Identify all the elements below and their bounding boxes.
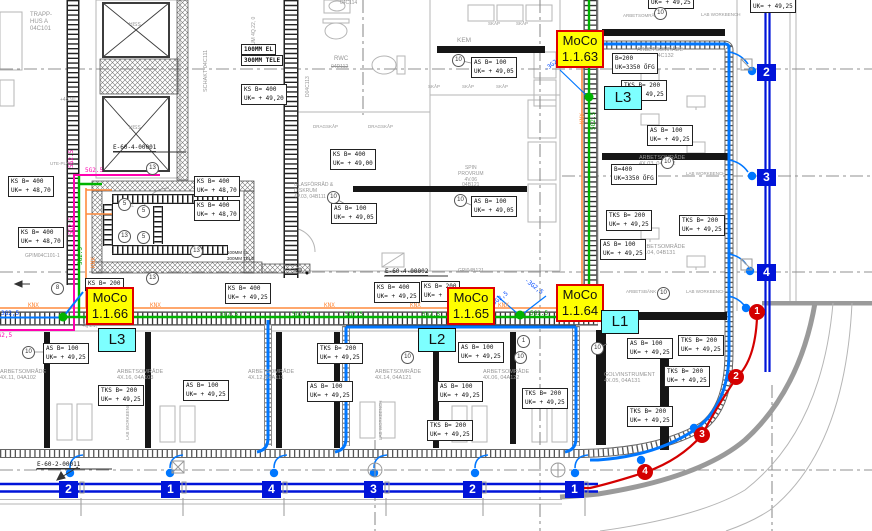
- furniture-label-lab: LAB WORKBENCH: [701, 12, 741, 17]
- measure-box: KS B= 400UK= + 49,25: [374, 282, 420, 303]
- ref-circle-5: 5: [137, 205, 150, 218]
- ref-circle-8: 8: [51, 282, 64, 295]
- cable-label-3g25-b: 3G2,5: [1, 310, 19, 317]
- cable-label-5g25: 5G2.5: [220, 311, 238, 318]
- duct-note-300mm: 300MM TELE: [227, 256, 254, 261]
- measure-box: TKS B= 200UK= + 49,25: [627, 406, 673, 427]
- cable-label-5g25-mv: 5G2.5: [68, 217, 75, 235]
- furniture-label-skap: SKÅP: [462, 84, 474, 89]
- room-label-trapphus: TRAPP-HUS A04C101: [30, 12, 52, 33]
- area-label-4x11: ARBETSOMRÅDE4X.11, 04A102: [0, 369, 46, 382]
- measure-box: AS B= 100UK= + 49,05: [471, 57, 517, 78]
- ref-circle-10: 10: [454, 194, 467, 207]
- cable-label-5g25-v: 5G2.5: [77, 247, 84, 265]
- ref-circle-10: 10: [657, 287, 670, 300]
- measure-box: AS B= 100UK= + 49,25: [627, 338, 673, 359]
- load-label-l2: L2: [418, 328, 456, 352]
- eq-label-e60-4-00001: E-60-4-00001: [113, 144, 156, 152]
- eq-label-gpi: GPI04B121: [458, 269, 484, 275]
- cable-label-5g25-v: 5G2.5: [590, 112, 597, 130]
- room-label-rwc: RWC: [334, 56, 348, 63]
- grid-marker-blue-4: 4: [757, 264, 776, 281]
- measure-box: AS B= 100UK= + 49,05: [331, 203, 377, 224]
- duct-box-100mm-el: 100MM EL: [241, 44, 276, 55]
- ref-circle-10: 10: [452, 54, 465, 67]
- measure-box: TKS B= 200UK= + 49,25: [427, 420, 473, 441]
- marker-red-1: 1: [749, 304, 765, 320]
- area-label-4x12: ARBETSOMRÅDE4X.12, 04A111: [248, 369, 294, 382]
- grid-marker-blue-2: 2: [463, 481, 482, 498]
- measure-box: AS B= 100UK= + 49,25: [648, 0, 694, 9]
- cable-label-5g25: 5G2.5: [422, 311, 440, 318]
- measure-box: AS B= 100UK= + 49,25: [437, 381, 483, 402]
- ref-circle-13: 13: [118, 230, 131, 243]
- room-label-spin: SPINPROVRUM4V.0604B121: [458, 166, 484, 189]
- grid-marker-blue-1: 1: [565, 481, 584, 498]
- ref-circle-13: 13: [190, 245, 203, 258]
- cable-label-5g25: 5G2.5: [530, 310, 548, 317]
- ref-circle-10: 10: [654, 7, 667, 20]
- ref-circle-10: 10: [22, 346, 35, 359]
- measure-box: KS B= 400UK= + 48,70: [194, 200, 240, 221]
- cable-label-5g25: 5G2.5: [292, 311, 310, 318]
- area-label-4x06: ARBETSOMRÅDE4X.06, 04A122: [483, 369, 529, 382]
- load-label-l3-left: L3: [98, 328, 136, 352]
- duct-note-100mm: 100MM EL: [227, 250, 249, 255]
- ref-circle-13: 13: [146, 162, 159, 175]
- ref-circle-1: 1: [517, 335, 530, 348]
- ref-circle-5: 5: [137, 231, 150, 244]
- area-label-4x04: ARBETSOMRÅDE4X.04, 04B131: [639, 244, 685, 257]
- measure-box: TKS B= 200UK= + 49,25: [606, 210, 652, 231]
- moco-label-1-1-63: MoCo1.1.63: [556, 30, 604, 68]
- cable-label-3g25-m: 3G2,5: [0, 332, 12, 339]
- cable-label-knx: KNX: [410, 302, 421, 309]
- measure-box: AS B= 100UK= + 49,25: [307, 381, 353, 402]
- marker-red-4: 4: [637, 464, 653, 480]
- eq-label-gpim: GPIM04C101-1: [25, 254, 60, 260]
- area-label-golv: GOLVINSTRUMENT4X.05, 04A131: [604, 372, 655, 385]
- room-label-hiss-2: HISS: [129, 126, 141, 132]
- load-label-l3-top: L3: [604, 86, 642, 110]
- furniture-label-lab: LAB WORKBENCH: [686, 171, 726, 176]
- cable-label-knx: KNX: [150, 302, 161, 309]
- grid-marker-blue-4: 4: [262, 481, 281, 498]
- moco-label-1-1-65: MoCo1.1.65: [447, 287, 495, 325]
- measure-box: AS B= 100UK= + 49,05: [471, 196, 517, 217]
- ref-circle-10: 10: [661, 156, 674, 169]
- measure-box: AS B= 100UK= + 49,25: [647, 125, 693, 146]
- furniture-label-lab-v: LAB WORKBENCH: [125, 400, 130, 440]
- eq-label-e60-4-00002: E-60-4-00002: [385, 268, 428, 276]
- load-label-l1: L1: [601, 310, 639, 334]
- room-label-d04c113: D04C113: [306, 76, 312, 97]
- furniture-label-skap: SKÅP: [428, 84, 440, 89]
- measure-box: TKS B= 200UK= + 49,25: [664, 366, 710, 387]
- drawing-layers: [0, 0, 872, 531]
- symbol-label-so: SÖ: [294, 268, 302, 274]
- furniture-label-skap: SKÅP: [488, 21, 500, 26]
- area-label-4x14: ARBETSOMRÅDE4X.14, 04A121: [375, 369, 421, 382]
- area-label-4x16: ARBETSOMRÅDE4X.16, 04A103: [117, 369, 163, 382]
- cable-label-knx: KNX: [324, 302, 335, 309]
- cable-label-knx-v: KNX: [90, 257, 97, 268]
- measure-box: AS B= 100UK= + 49,25: [43, 343, 89, 364]
- measure-box: B=400UK=3350 ÖFG: [611, 164, 657, 185]
- ref-circle-10: 10: [514, 351, 527, 364]
- cable-label-5g25-m: 5G2.5: [85, 167, 103, 174]
- measure-box: KS B= 400UK= + 49,20: [241, 84, 287, 105]
- measure-box: AS B= 100UK= + 49,25: [183, 380, 229, 401]
- ref-circle-10: 10: [327, 191, 340, 204]
- grid-marker-blue-3: 3: [364, 481, 383, 498]
- furniture-label-skap: SKÅP: [496, 84, 508, 89]
- ref-circle-10: 10: [401, 351, 414, 364]
- measure-box: TKS B= 200UK= + 49,25: [98, 385, 144, 406]
- furniture-label-lab-v: LAB WORKBENCH: [378, 400, 383, 440]
- ref-circle-5: 5: [118, 198, 131, 211]
- measure-box: TKS B= 200UK= + 49,25: [317, 343, 363, 364]
- measure-box: TKS B= 200UK= + 49,25: [678, 335, 724, 356]
- grid-marker-blue-3: 3: [757, 169, 776, 186]
- furniture-label-bank: ARBETSBÄNK: [626, 289, 656, 294]
- measure-box: KS B= 400UK= + 49,00: [330, 149, 376, 170]
- eq-label-e60-2-00011: E-60-2-00011: [37, 461, 80, 469]
- measure-box: TKS B= 200UK= + 49,25: [522, 388, 568, 409]
- cable-label-knx-v: KNX: [579, 113, 586, 124]
- cable-label-5g25-mv: 5G2.5: [68, 150, 75, 168]
- moco-label-1-1-64: MoCo1.1.64: [556, 284, 604, 322]
- furniture-label-dragskap: DRAGSKÅP: [313, 124, 338, 129]
- duct-box-300mm-tele: 300MM TELE: [241, 55, 283, 66]
- measure-box: B=200UK=3350 ÖFG: [612, 53, 658, 74]
- room-label-kem: KEM: [457, 37, 471, 44]
- cable-label-5g25: 5G2.5: [345, 311, 363, 318]
- measure-box: KS B= 400UK= + 48,70: [18, 227, 64, 248]
- marker-red-3: 3: [694, 427, 710, 443]
- room-label-hiss-1: HISS: [129, 23, 141, 29]
- grid-marker-blue-2: 2: [59, 481, 78, 498]
- measure-box: AS B= 100UK= + 49,25: [750, 0, 796, 13]
- room-label-schakt: SCHAKT 04C111: [203, 50, 209, 92]
- furniture-label-skap: SKÅP: [516, 21, 528, 26]
- level-label: +48,90: [60, 98, 75, 104]
- measure-box: KS B= 400UK= + 48,70: [194, 176, 240, 197]
- cable-label-knx: KNX: [28, 302, 39, 309]
- cad-floorplan-canvas: TRAPP-HUS A04C101 HISS HISS SCHAKT 04C11…: [0, 0, 872, 531]
- grid-marker-blue-1: 1: [161, 481, 180, 498]
- measure-box: TKS B= 200UK= + 49,25: [679, 215, 725, 236]
- ref-circle-13: 13: [146, 272, 159, 285]
- measure-box: KS B= 400UK= + 49,25: [225, 283, 271, 304]
- measure-box: KS B= 400UK= + 48,70: [8, 176, 54, 197]
- moco-label-1-1-66: MoCo1.1.66: [86, 287, 134, 325]
- room-label-04c114: 04C114: [340, 1, 357, 7]
- room-label-rwc-id: 04D112: [331, 65, 348, 71]
- grid-marker-blue-2: 2: [757, 64, 776, 81]
- furniture-label-dragskap: DRAGSKÅP: [368, 124, 393, 129]
- marker-red-2: 2: [728, 369, 744, 385]
- furniture-label-lab: LAB WORKBENCH: [686, 289, 726, 294]
- ref-circle-10: 10: [591, 342, 604, 355]
- measure-box: AS B= 100UK= + 49,25: [458, 342, 504, 363]
- measure-box: AS B= 100UK= + 49,25: [600, 239, 646, 260]
